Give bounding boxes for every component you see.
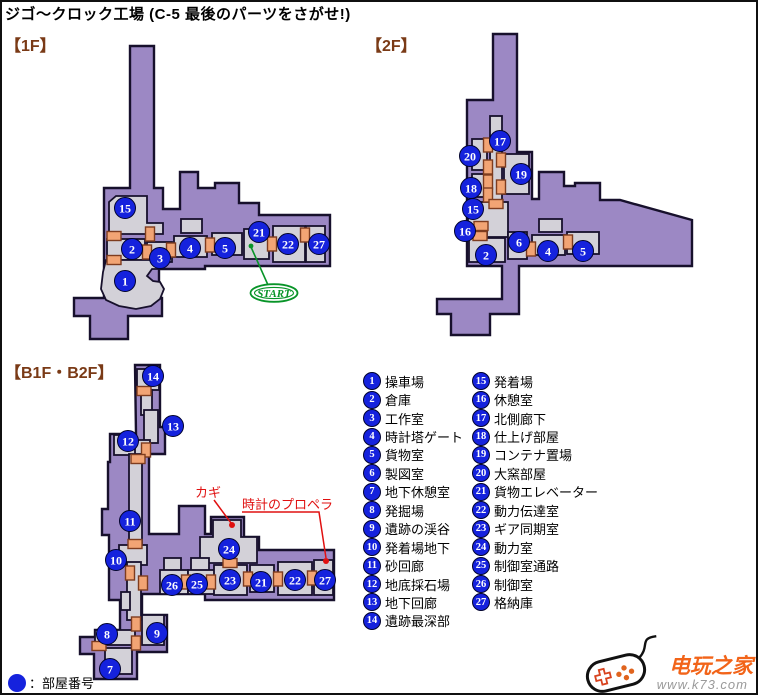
door-marker	[564, 235, 573, 249]
room-number-badge: 10	[363, 538, 381, 556]
room-marker-number: 4	[545, 244, 551, 258]
legend-item-9: 9遺跡の渓谷	[363, 520, 463, 538]
room-marker-number: 12	[122, 434, 134, 448]
room-name-label: 地下休憩室	[385, 482, 450, 501]
room-name-label: 時計塔ゲート	[385, 427, 463, 446]
room-number-badge: 23	[472, 520, 490, 538]
room-number-badge: 8	[363, 501, 381, 519]
room-marker-number: 21	[255, 575, 267, 589]
room-number-badge: 21	[472, 483, 490, 501]
room-marker-number: 15	[119, 201, 131, 215]
gamepad-cable	[635, 636, 661, 658]
room-number-badge: 16	[472, 391, 490, 409]
room-marker-number: 23	[224, 573, 236, 587]
room-marker-number: 5	[580, 244, 586, 258]
watermark-url: www.k73.com	[657, 677, 748, 692]
room-marker-number: 14	[147, 369, 159, 383]
room-number-circle-icon	[8, 674, 26, 692]
room-name-label: 工作室	[385, 409, 424, 428]
room-name-label: 動力伝達室	[494, 501, 559, 520]
legend-item-26: 26制御室	[472, 575, 598, 593]
door-marker	[274, 572, 283, 586]
door-marker	[489, 200, 503, 209]
door-marker	[126, 566, 135, 580]
room-number-badge: 7	[363, 483, 381, 501]
door-marker	[107, 256, 121, 265]
room-number-badge: 25	[472, 557, 490, 575]
room-number-badge: 17	[472, 409, 490, 427]
room-marker-number: 7	[107, 662, 113, 676]
watermark-brand: 电玩之家	[669, 650, 753, 680]
room-name-label: 北側廊下	[494, 409, 546, 428]
door-marker	[474, 222, 488, 231]
room-name-label: コンテナ置場	[494, 445, 572, 464]
door-marker	[207, 575, 216, 589]
room-name-label: 遺跡の渓谷	[385, 519, 450, 538]
room-shape-small-2f	[539, 219, 562, 232]
room-marker-number: 5	[222, 241, 228, 255]
room-number-badge: 15	[472, 372, 490, 390]
room-number-badge: 11	[363, 557, 381, 575]
door-marker	[206, 238, 215, 252]
room-name-label: 地底採石場	[385, 575, 450, 594]
room-name-label: 発掘場	[385, 501, 424, 520]
room-marker-number: 13	[167, 419, 179, 433]
legend-column-2: 15発着場16休憩室17北側廊下18仕上げ部屋19コンテナ置場20大窯部屋21貨…	[472, 372, 598, 612]
room-marker-number: 18	[465, 181, 477, 195]
room-marker-number: 25	[191, 577, 203, 591]
room-name-label: 地下回廊	[385, 593, 437, 612]
annotation-propeller-label: 時計のプロペラ	[242, 497, 333, 512]
legend-item-15: 15発着場	[472, 372, 598, 390]
room-name-label: 発着場地下	[385, 538, 450, 557]
room-number-badge: 26	[472, 575, 490, 593]
legend-item-14: 14遺跡最深部	[363, 612, 463, 630]
legend-item-19: 19コンテナ置場	[472, 446, 598, 464]
room-name-label: 貨物エレベーター	[494, 482, 598, 501]
legend-item-17: 17北側廊下	[472, 409, 598, 427]
room-marker-number: 17	[494, 134, 506, 148]
door-marker	[137, 387, 151, 396]
legend-item-4: 4時計塔ゲート	[363, 427, 463, 445]
room-marker-number: 22	[289, 573, 301, 587]
room-number-badge: 5	[363, 446, 381, 464]
legend-item-13: 13地下回廊	[363, 593, 463, 611]
door-marker	[132, 617, 141, 631]
legend-item-25: 25制御室通路	[472, 556, 598, 574]
annotation-propeller-dot	[323, 558, 329, 564]
room-number-badge: 13	[363, 593, 381, 611]
room-marker-number: 26	[166, 578, 178, 592]
room-name-label: 貨物室	[385, 445, 424, 464]
room-number-badge: 9	[363, 520, 381, 538]
room-name-label: 操車場	[385, 372, 424, 391]
room-name-label: 製図室	[385, 464, 424, 483]
legend-item-1: 1操車場	[363, 372, 463, 390]
room-name-label: 倉庫	[385, 390, 411, 409]
door-marker	[301, 228, 310, 242]
gamepad-icon	[582, 636, 667, 695]
legend-item-3: 3工作室	[363, 409, 463, 427]
legend-item-22: 22動力伝達室	[472, 501, 598, 519]
legend-item-24: 24動力室	[472, 538, 598, 556]
room-number-badge: 20	[472, 464, 490, 482]
map-1f: START 1523145212227	[74, 46, 330, 339]
room-marker-number: 9	[154, 626, 160, 640]
legend-item-20: 20大窯部屋	[472, 464, 598, 482]
room-number-badge: 24	[472, 538, 490, 556]
door-marker	[107, 232, 121, 241]
map-guide-image: ジゴ～クロック工場 (C-5 最後のパーツをさがせ!) 【1F】 【2F】 【B…	[0, 0, 758, 695]
room-name-label: ギア同期室	[494, 519, 559, 538]
door-marker	[128, 540, 142, 549]
legend-item-10: 10発着場地下	[363, 538, 463, 556]
room-name-label: 砂回廊	[385, 556, 424, 575]
gamepad-body	[584, 651, 648, 694]
room-number-badge: 18	[472, 428, 490, 446]
legend-item-2: 2倉庫	[363, 390, 463, 408]
room-number-badge: 6	[363, 464, 381, 482]
door-marker	[484, 160, 493, 174]
room-marker-number: 8	[104, 627, 110, 641]
door-marker	[268, 237, 277, 251]
legend-item-16: 16休憩室	[472, 390, 598, 408]
room-number-badge: 19	[472, 446, 490, 464]
room-name-label: 休憩室	[494, 390, 533, 409]
room-number-badge: 2	[363, 391, 381, 409]
legend-column-1: 1操車場2倉庫3工作室4時計塔ゲート5貨物室6製図室7地下休憩室8発掘場9遺跡の…	[363, 372, 463, 630]
room-number-badge: 1	[363, 372, 381, 390]
annotation-kagi-label: カギ	[195, 485, 221, 500]
room-number-badge: 27	[472, 593, 490, 611]
room-marker-number: 22	[282, 237, 294, 251]
door-marker	[497, 180, 506, 194]
legend-item-23: 23ギア同期室	[472, 520, 598, 538]
door-marker	[139, 576, 148, 590]
room-marker-number: 27	[319, 573, 331, 587]
legend-item-18: 18仕上げ部屋	[472, 427, 598, 445]
room-name-label: 発着場	[494, 372, 533, 391]
legend-item-27: 27格納庫	[472, 593, 598, 611]
room-marker-number: 1	[122, 274, 128, 288]
annotation-kagi-dot	[229, 522, 235, 528]
room-marker-number: 2	[483, 248, 489, 262]
room-name-label: 仕上げ部屋	[494, 427, 559, 446]
legend-item-12: 12地底採石場	[363, 575, 463, 593]
map-2f: 1720191815162645	[437, 34, 692, 335]
map-b1f-b2f: カギ 時計のプロペラ 141312111089724262523212227	[80, 365, 336, 680]
room-name-label: 動力室	[494, 538, 533, 557]
room-marker-number: 6	[516, 235, 522, 249]
legend-item-6: 6製図室	[363, 464, 463, 482]
door-marker	[484, 175, 493, 189]
room-marker-number: 16	[459, 224, 471, 238]
room-marker-number: 19	[515, 167, 527, 181]
room-marker-number: 20	[464, 149, 476, 163]
room-marker-number: 27	[313, 237, 325, 251]
room-shape-13	[144, 410, 158, 443]
room-marker-number: 15	[467, 202, 479, 216]
legend-item-11: 11砂回廊	[363, 556, 463, 574]
room-number-badge: 4	[363, 428, 381, 446]
room-name-label: 制御室通路	[494, 556, 559, 575]
door-marker	[131, 455, 145, 464]
legend-item-5: 5貨物室	[363, 446, 463, 464]
door-marker	[497, 153, 506, 167]
room-number-badge: 14	[363, 612, 381, 630]
footer-legend-label: ：部屋番号	[29, 673, 94, 692]
room-marker-number: 10	[110, 553, 122, 567]
room-marker-number: 4	[187, 241, 193, 255]
room-shape-small	[181, 219, 202, 233]
room-marker-number: 11	[124, 514, 135, 528]
footer-legend: ：部屋番号	[8, 673, 94, 692]
legend-item-21: 21貨物エレベーター	[472, 483, 598, 501]
room-number-badge: 3	[363, 409, 381, 427]
legend-item-8: 8発掘場	[363, 501, 463, 519]
door-marker	[146, 227, 155, 241]
room-marker-number: 2	[129, 242, 135, 256]
legend-item-7: 7地下休憩室	[363, 483, 463, 501]
room-name-label: 遺跡最深部	[385, 611, 450, 630]
room-name-label: 格納庫	[494, 593, 533, 612]
room-name-label: 制御室	[494, 575, 533, 594]
corridor-shape-11	[129, 454, 142, 546]
room-marker-number: 24	[223, 542, 235, 556]
room-number-badge: 12	[363, 575, 381, 593]
room-number-badge: 22	[472, 501, 490, 519]
start-label: START	[257, 288, 292, 300]
room-marker-number: 3	[157, 251, 163, 265]
corridor-shape	[121, 592, 130, 610]
room-marker-number: 21	[253, 225, 265, 239]
room-name-label: 大窯部屋	[494, 464, 546, 483]
door-marker	[132, 636, 141, 650]
